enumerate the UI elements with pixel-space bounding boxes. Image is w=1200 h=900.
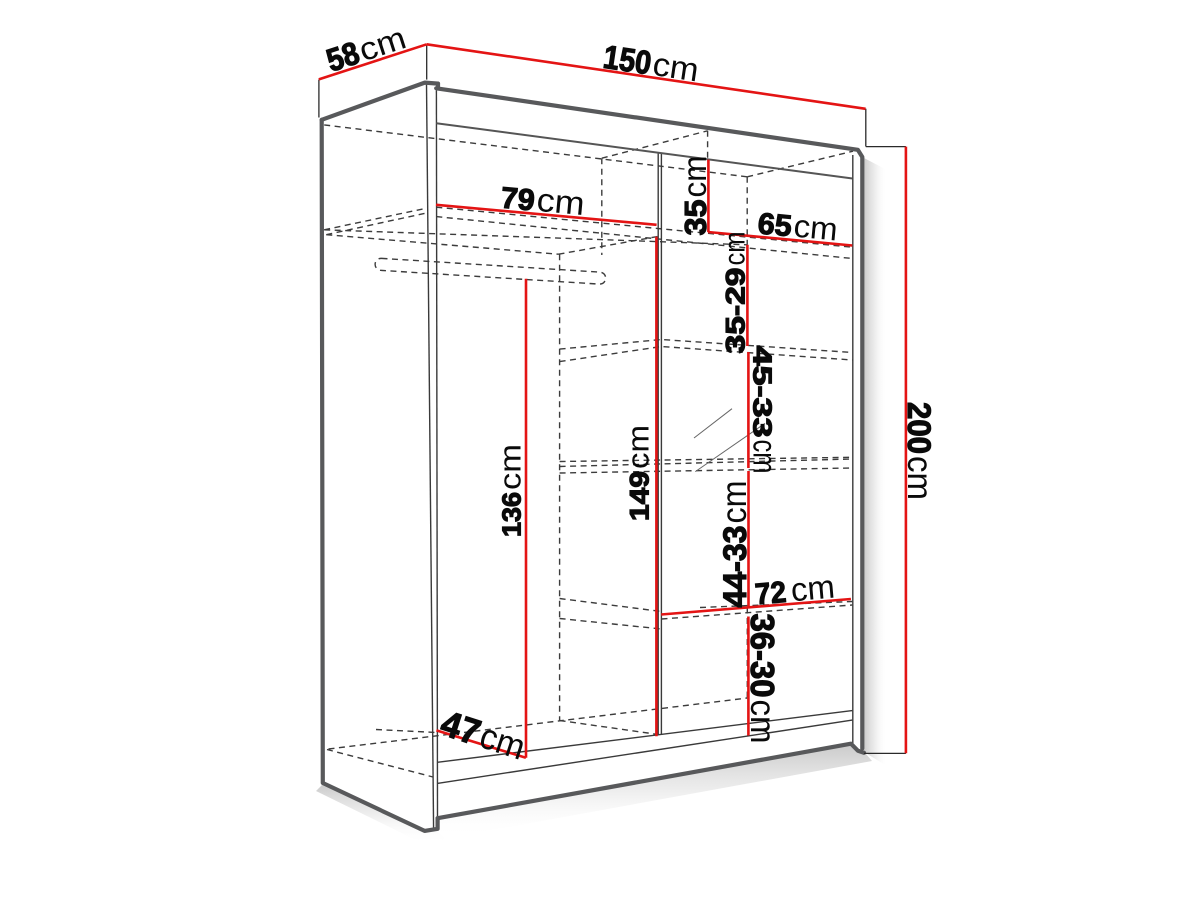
svg-text:36-30: 36-30 — [744, 614, 781, 698]
svg-text:45-33: 45-33 — [748, 346, 778, 438]
svg-text:150: 150 — [601, 38, 654, 82]
svg-text:136: 136 — [497, 492, 527, 537]
svg-text:79: 79 — [499, 182, 536, 218]
svg-text:cm: cm — [715, 481, 754, 524]
svg-text:72: 72 — [754, 576, 788, 612]
svg-text:200: 200 — [901, 402, 937, 454]
svg-text:149: 149 — [625, 471, 655, 521]
svg-text:cm: cm — [900, 456, 939, 500]
svg-text:cm: cm — [676, 156, 713, 198]
svg-text:cm: cm — [535, 181, 586, 222]
svg-text:cm: cm — [747, 440, 784, 474]
svg-text:cm: cm — [792, 208, 839, 248]
svg-text:cm: cm — [493, 444, 528, 490]
svg-text:44-33: 44-33 — [717, 526, 753, 608]
svg-text:65: 65 — [756, 207, 793, 243]
svg-text:cm: cm — [650, 45, 701, 88]
svg-text:cm: cm — [789, 568, 836, 609]
svg-text:cm: cm — [719, 232, 752, 266]
svg-text:35-29: 35-29 — [721, 268, 751, 354]
svg-text:35: 35 — [678, 200, 713, 236]
svg-text:cm: cm — [621, 425, 656, 469]
svg-text:cm: cm — [743, 700, 782, 744]
